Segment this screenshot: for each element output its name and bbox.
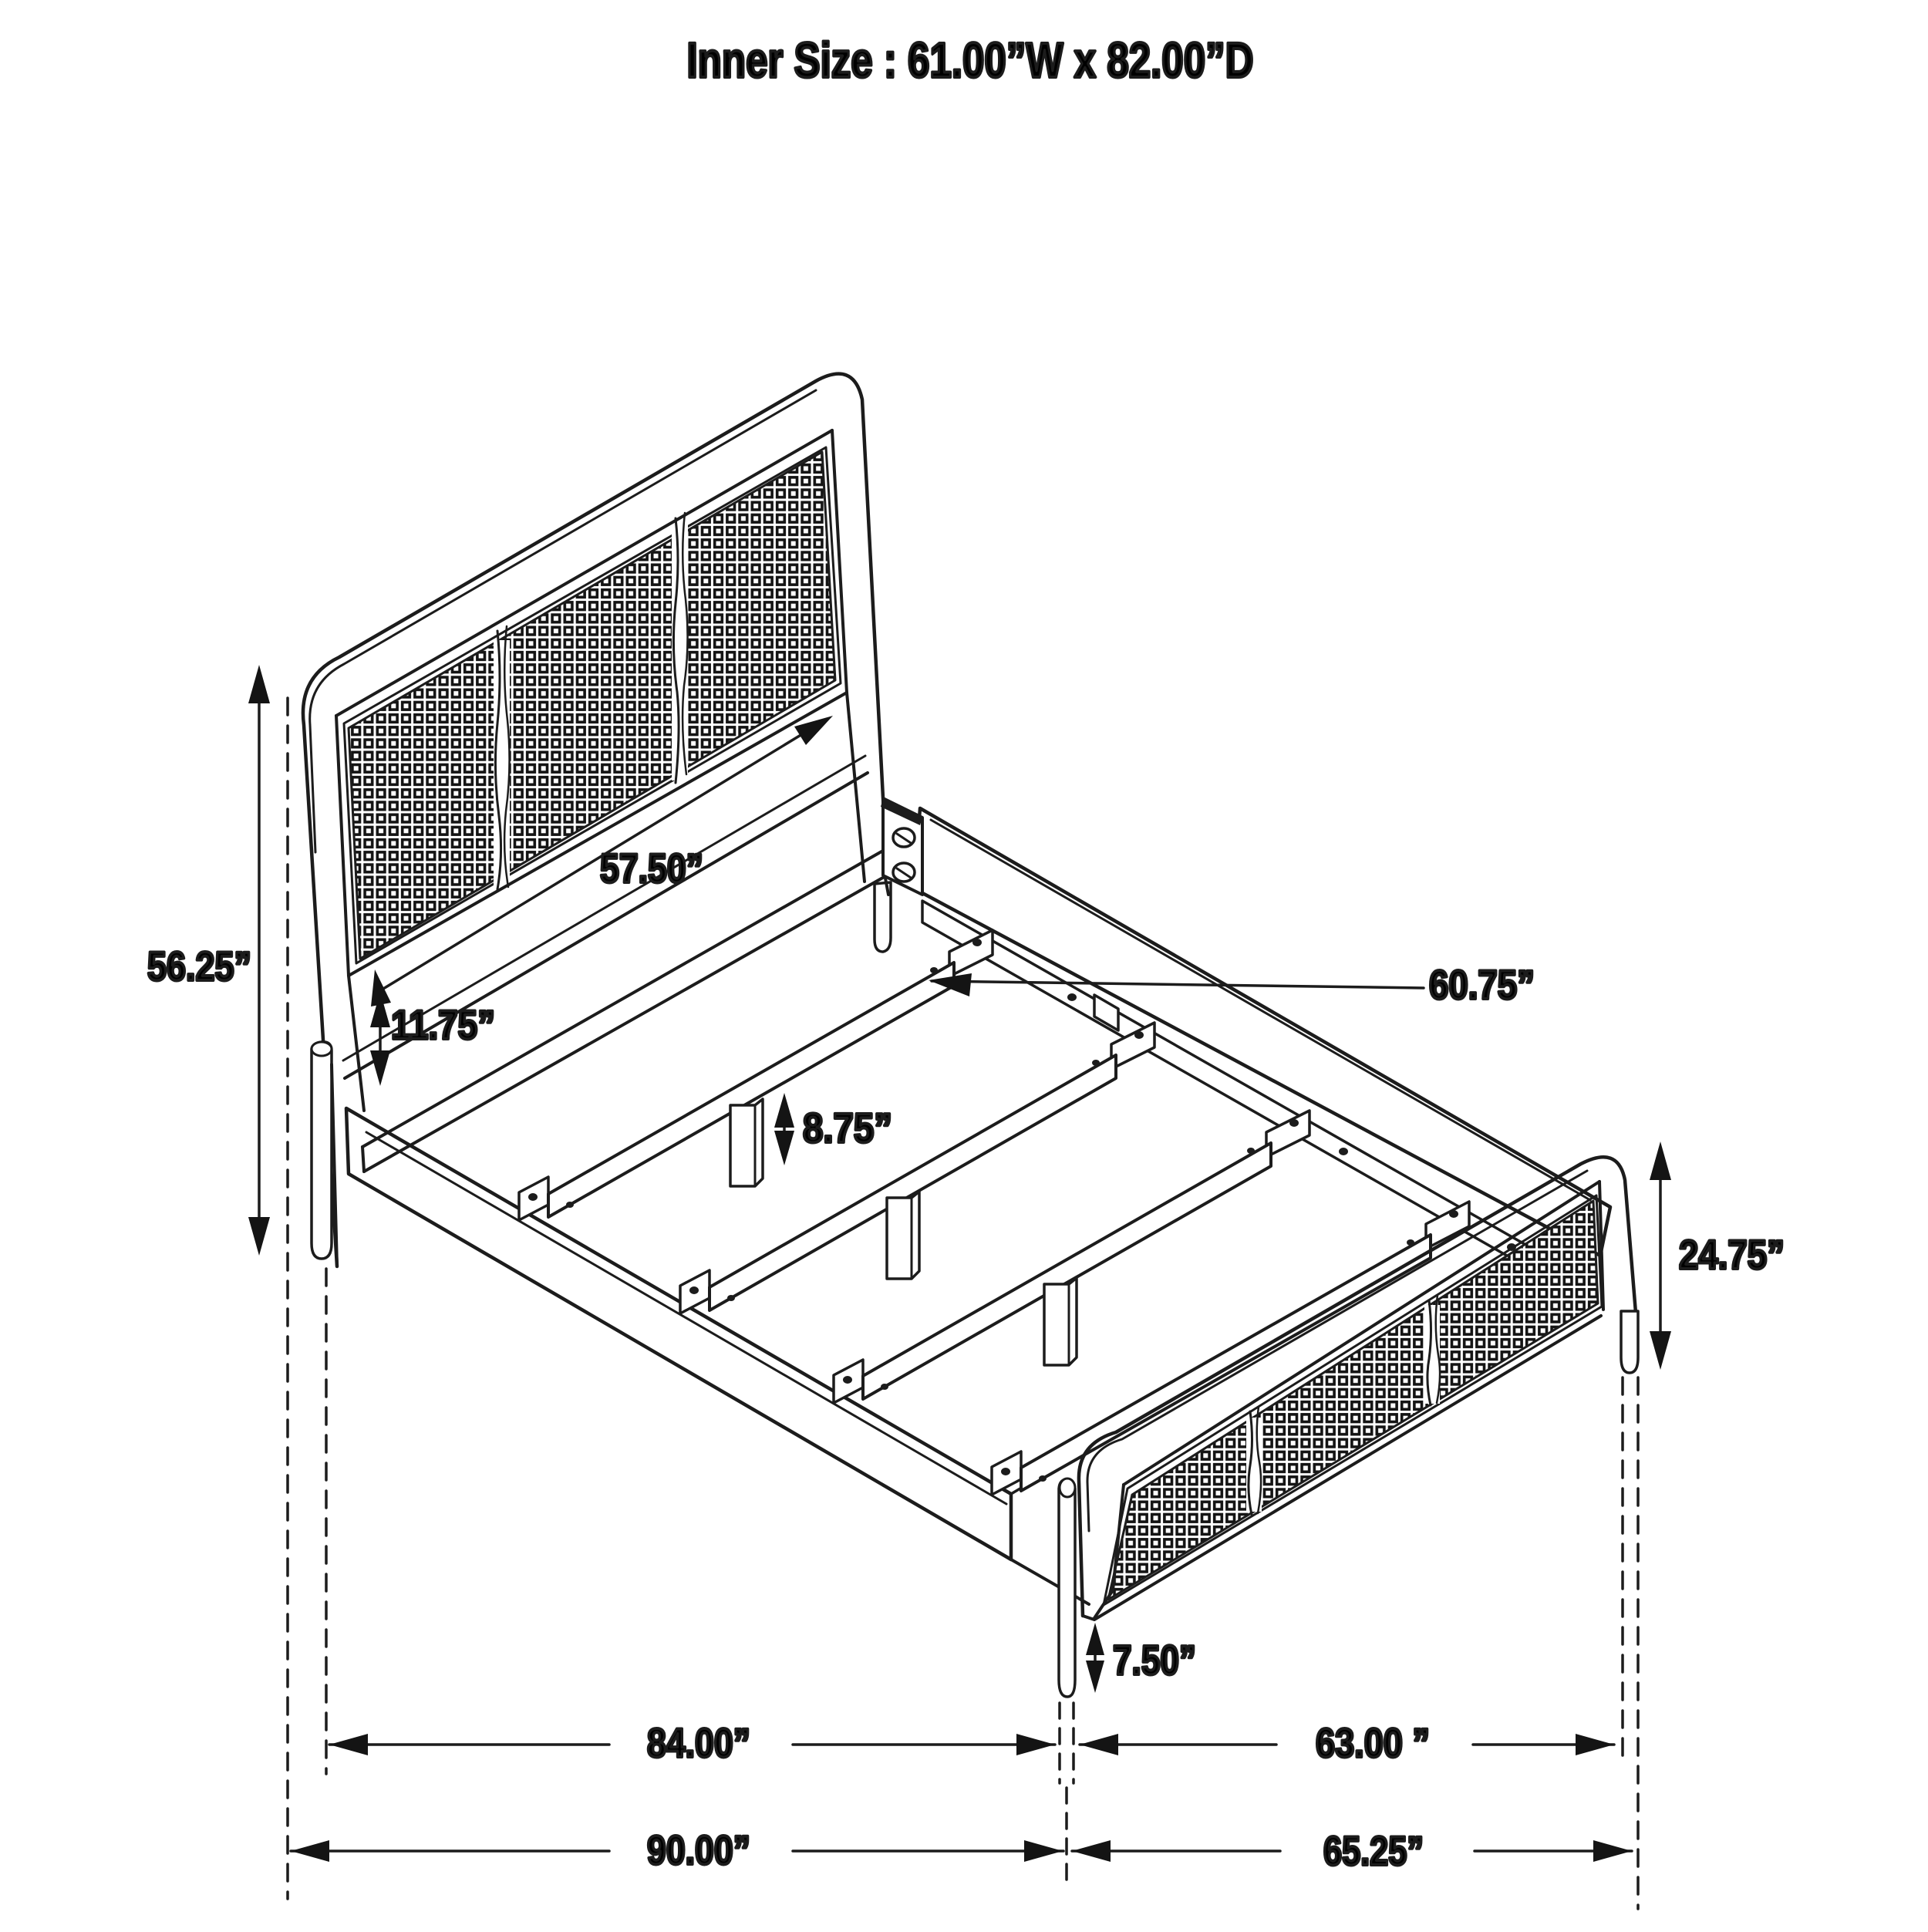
svg-text:8.75”: 8.75” (803, 1105, 892, 1151)
svg-text:90.00”: 90.00” (647, 1828, 750, 1873)
svg-text:Inner Size : 61.00”W x 82.00”D: Inner Size : 61.00”W x 82.00”D (687, 32, 1254, 88)
svg-text:11.75”: 11.75” (391, 1003, 495, 1048)
svg-text:57.50”: 57.50” (600, 846, 703, 892)
svg-text:63.00 ”: 63.00 ” (1316, 1721, 1430, 1766)
svg-text:56.25”: 56.25” (147, 944, 251, 990)
svg-text:7.50”: 7.50” (1113, 1637, 1196, 1684)
svg-text:84.00”: 84.00” (647, 1721, 750, 1766)
svg-text:60.75”: 60.75” (1429, 963, 1535, 1008)
svg-text:65.25”: 65.25” (1323, 1829, 1424, 1874)
svg-text:24.75”: 24.75” (1679, 1232, 1785, 1278)
